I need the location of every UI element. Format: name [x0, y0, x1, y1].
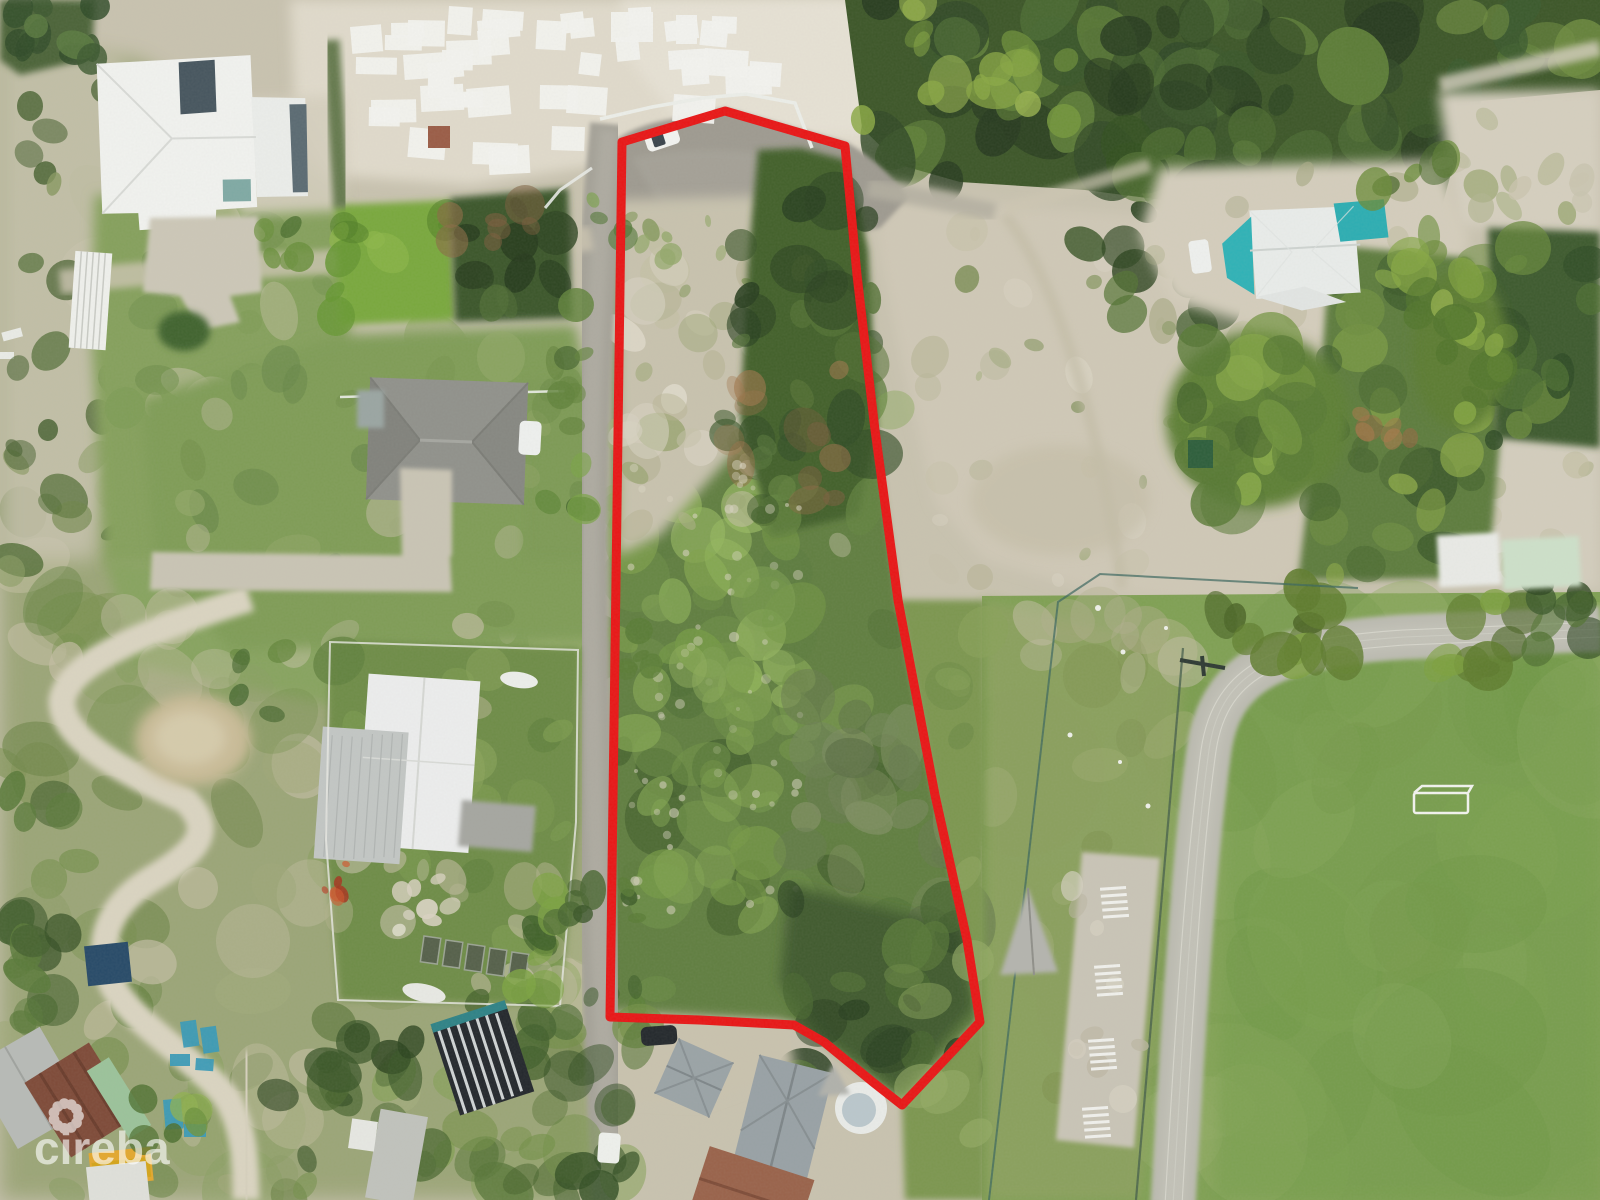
svg-text:cireba: cireba: [34, 1122, 170, 1174]
